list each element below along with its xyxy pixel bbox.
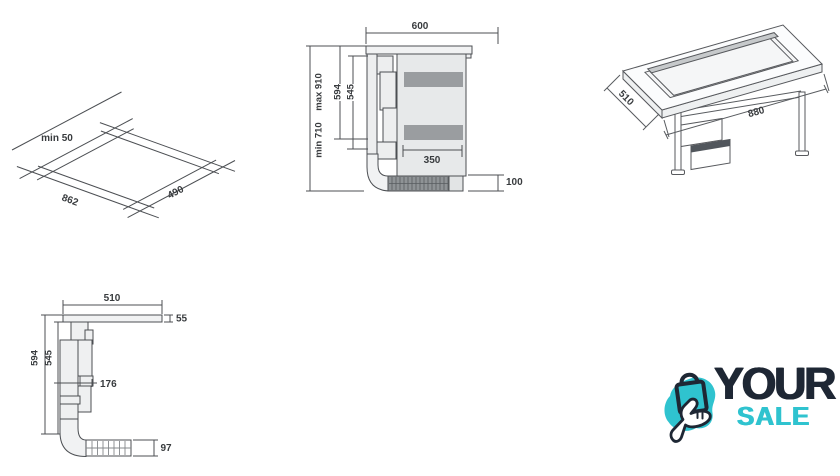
dim-label-top-width: 600 [412, 21, 429, 32]
vent-band-upper [404, 72, 463, 87]
vent-band-lower [404, 125, 463, 140]
plinth-grille [388, 176, 449, 191]
dim-label-worktop-depth: 510 [616, 88, 636, 108]
dim-label-hood-top-width: 510 [104, 293, 121, 304]
dim-label-hood-inner-height: 545 [44, 349, 55, 366]
hood-side-drawing: 510 55 594 545 176 97 [30, 293, 188, 457]
hood-duct-elbow [60, 419, 86, 457]
yoursale-logo: YOUR SALE [659, 359, 837, 455]
dim-plinth-height: 100 [468, 175, 523, 191]
dim-label-base-depth: 350 [424, 155, 441, 166]
dim-plinth-duct-height: 97 [133, 440, 172, 456]
rear-leg [796, 92, 809, 156]
logo-brand-bottom: SALE [737, 403, 810, 429]
dim-label-height-max: max 910 [314, 73, 325, 111]
telescopic-duct [367, 54, 397, 159]
dim-label-clearance: min 50 [41, 133, 73, 144]
cutout-plan-drawing: min 50 862 490 [12, 92, 235, 218]
dim-top-width: 600 [366, 21, 498, 44]
dim-label-plinth-height: 100 [506, 177, 523, 188]
dim-label-cutout-width: 862 [60, 193, 80, 209]
logo-brand-top: YOUR [714, 361, 834, 406]
dim-label-height-min: min 710 [314, 122, 325, 157]
duct-elbow [367, 154, 391, 191]
hood-top-panel [63, 315, 162, 322]
dim-height-range: max 910 min 710 [306, 46, 366, 191]
dim-label-inner-height: 545 [346, 83, 357, 100]
dim-inner-height: 545 [346, 56, 369, 149]
countertop [366, 46, 472, 54]
dim-label-worktop-width: 880 [747, 105, 766, 120]
installed-iso-drawing: 510 880 [604, 25, 829, 175]
dim-label-duct-depth: 176 [100, 379, 117, 390]
dimension-sheet: min 50 862 490 max 910 min 710 [0, 0, 840, 476]
dim-top-thickness: 55 [164, 314, 188, 325]
dim-label-plinth-duct-height: 97 [161, 443, 173, 454]
dim-hood-top-width: 510 [63, 293, 162, 314]
dim-label-hood-duct-height: 594 [30, 349, 41, 366]
hood-telescopic-duct [60, 322, 93, 424]
cabinet-side-drawing: max 910 min 710 594 545 600 350 100 [306, 21, 523, 191]
dim-label-duct-height: 594 [333, 83, 344, 100]
dim-label-top-thickness: 55 [176, 314, 188, 325]
cutout-construction-lines [12, 92, 235, 218]
dim-label-cutout-depth: 490 [166, 184, 186, 202]
hood-plinth-grille [86, 440, 131, 456]
plinth-foot [449, 176, 463, 191]
